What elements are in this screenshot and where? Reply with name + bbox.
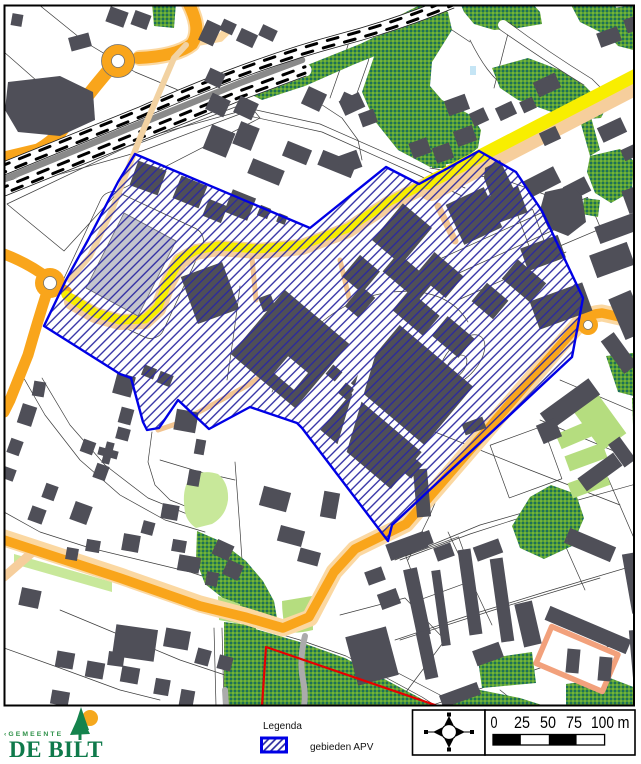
svg-text:50: 50: [540, 714, 556, 732]
svg-text:DE BILT: DE BILT: [9, 737, 103, 762]
svg-text:75: 75: [566, 714, 582, 732]
svg-text:Legenda: Legenda: [263, 721, 302, 732]
svg-text:gebieden APV: gebieden APV: [310, 742, 374, 753]
svg-text:m: m: [618, 714, 630, 732]
svg-text:25: 25: [514, 714, 530, 732]
svg-text:0: 0: [491, 714, 498, 732]
svg-text:100: 100: [591, 714, 614, 732]
